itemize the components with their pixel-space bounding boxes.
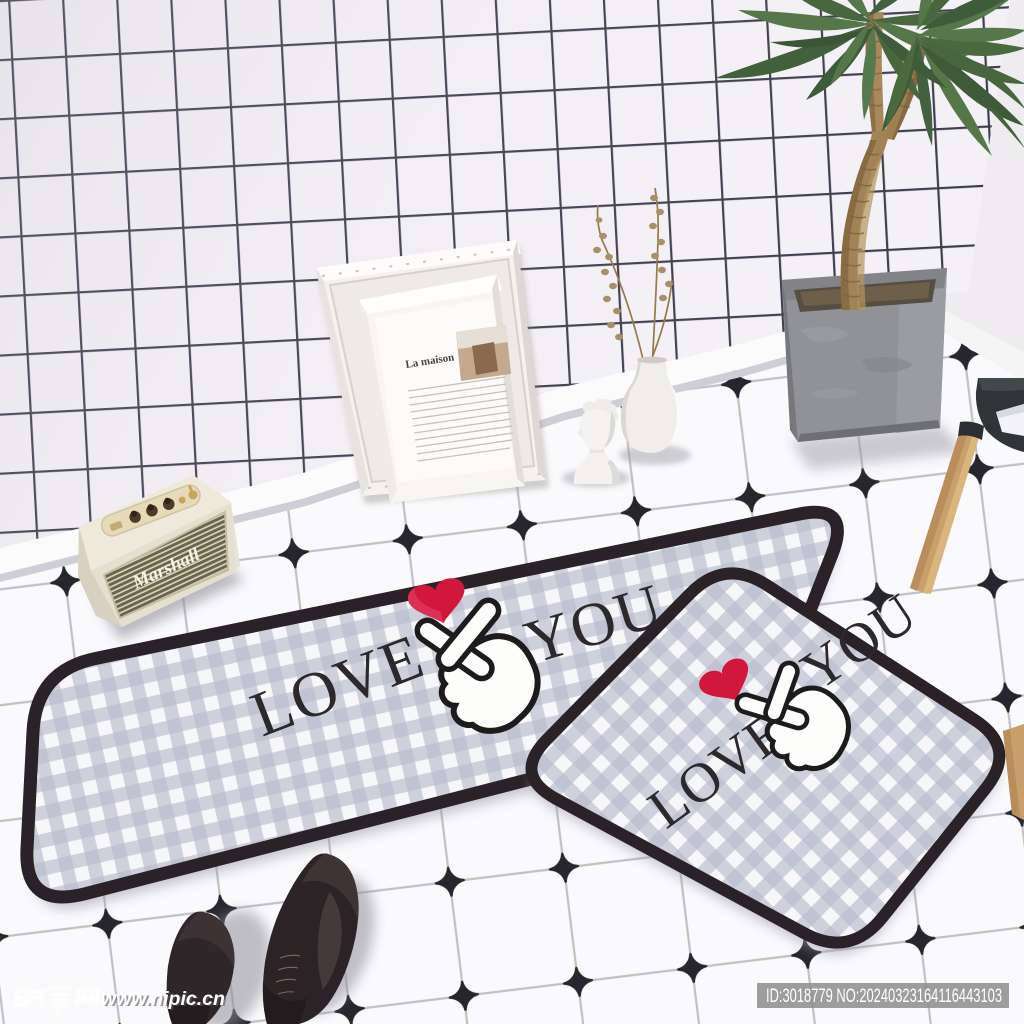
svg-text:ID:3018779 NO:2024032316411644: ID:3018779 NO:20240323164116443103 — [766, 986, 1002, 1007]
svg-text:www.nipic.cn: www.nipic.cn — [101, 988, 225, 1010]
